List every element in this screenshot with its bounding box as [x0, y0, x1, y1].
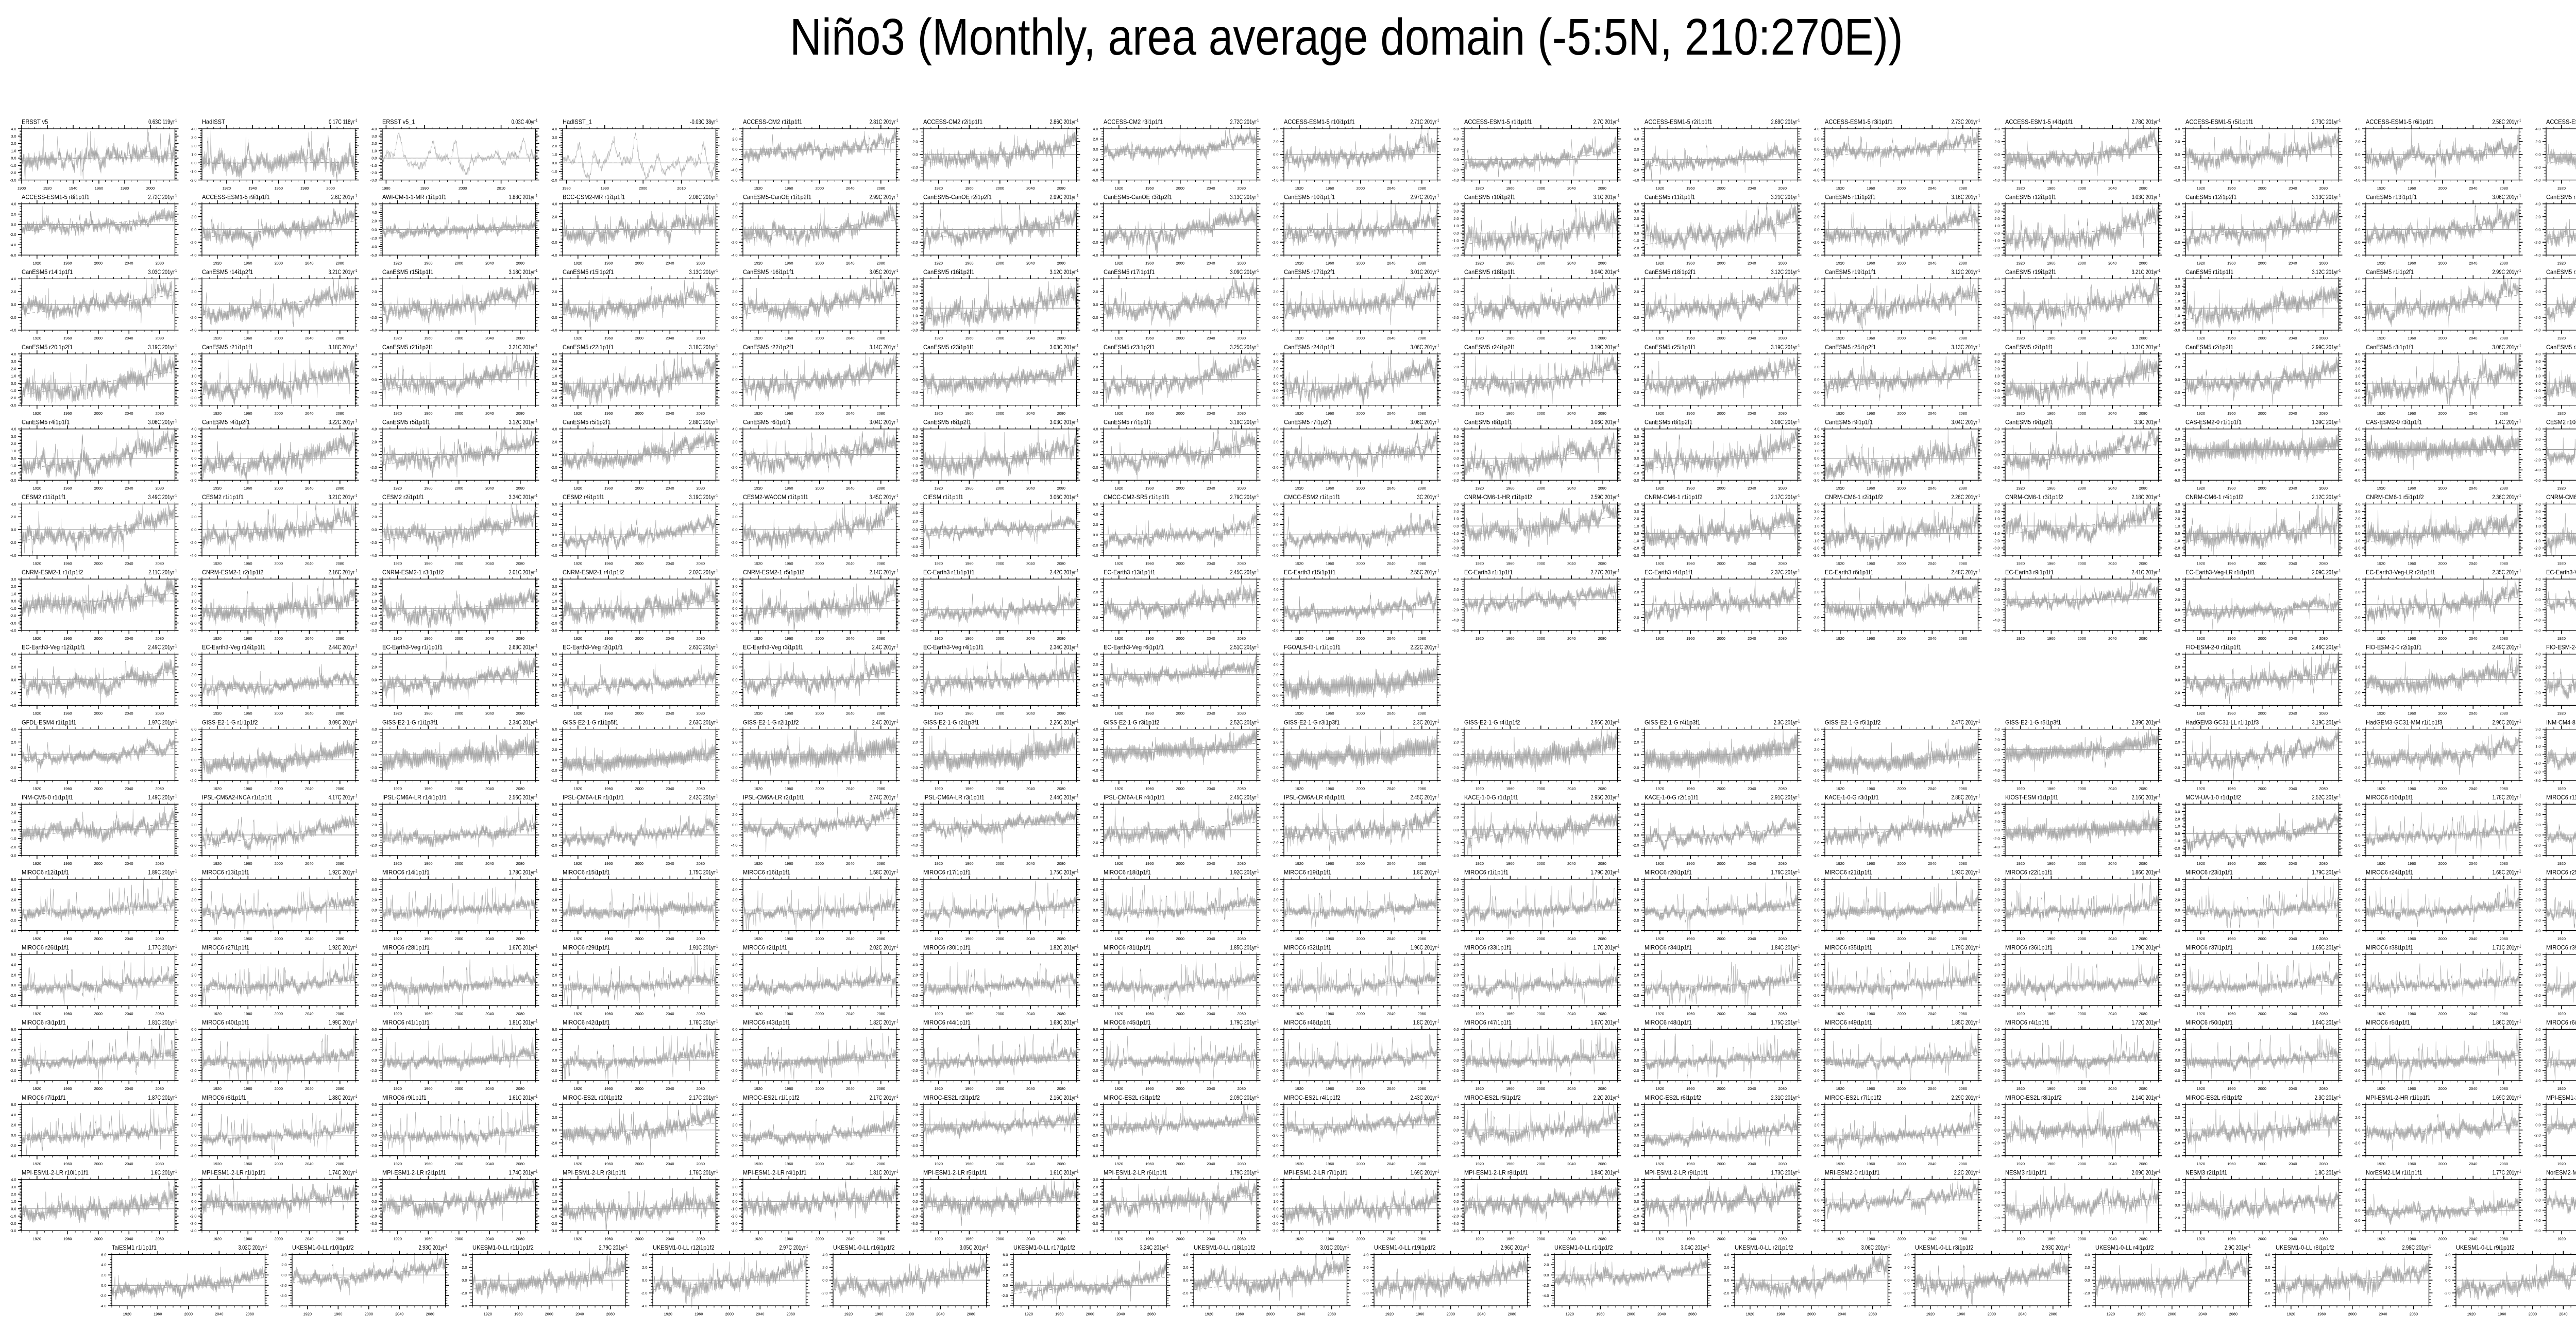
svg-text:-4.0: -4.0 — [190, 1003, 197, 1008]
svg-text:-2.0: -2.0 — [731, 240, 738, 245]
svg-text:2000: 2000 — [94, 936, 103, 941]
svg-text:2040: 2040 — [1567, 411, 1575, 416]
svg-text:1.68C 201yr-1: 1.68C 201yr-1 — [2492, 869, 2521, 876]
svg-text:2080: 2080 — [1418, 1086, 1426, 1091]
svg-text:0.0: 0.0 — [2355, 1208, 2360, 1213]
svg-text:0.0: 0.0 — [732, 227, 737, 232]
svg-text:3.01C 201yr-1: 3.01C 201yr-1 — [1320, 1244, 1349, 1252]
svg-text:-2.0: -2.0 — [370, 993, 377, 998]
svg-text:0.0: 0.0 — [2535, 381, 2540, 386]
svg-text:-4.0: -4.0 — [2534, 854, 2541, 858]
svg-text:1920: 1920 — [754, 1162, 762, 1166]
svg-text:2.0: 2.0 — [2535, 437, 2540, 442]
svg-text:2000: 2000 — [2258, 711, 2266, 716]
svg-text:CNRM-ESM2-1 r3i1p1f2: CNRM-ESM2-1 r3i1p1f2 — [382, 569, 444, 576]
svg-text:2040: 2040 — [485, 861, 494, 866]
svg-text:2080: 2080 — [877, 561, 885, 566]
svg-text:-4.0: -4.0 — [641, 1304, 648, 1308]
svg-text:2.0: 2.0 — [732, 289, 737, 294]
svg-text:-2.0: -2.0 — [2174, 846, 2180, 850]
svg-text:-2.0: -2.0 — [1633, 246, 1639, 250]
svg-text:0.0: 0.0 — [1453, 231, 1459, 235]
svg-text:2000: 2000 — [1537, 636, 1545, 641]
svg-text:4.0: 4.0 — [1814, 277, 1819, 281]
svg-text:1960: 1960 — [1145, 1162, 1154, 1166]
svg-text:0.0: 0.0 — [371, 753, 377, 757]
svg-text:EC-Earth3-Veg r2i1p1f1: EC-Earth3-Veg r2i1p1f1 — [563, 644, 623, 651]
svg-text:0.0: 0.0 — [1994, 983, 1999, 987]
svg-text:4.0: 4.0 — [912, 127, 918, 131]
svg-text:2.31C 201yr-1: 2.31C 201yr-1 — [1771, 1094, 1800, 1101]
svg-text:CanESM5 r16i1p2f1: CanESM5 r16i1p2f1 — [923, 269, 974, 276]
svg-text:-4.0: -4.0 — [2534, 1144, 2541, 1148]
svg-text:4.0: 4.0 — [732, 652, 737, 657]
svg-text:KIOST-ESM r1i1p1f1: KIOST-ESM r1i1p1f1 — [2005, 794, 2058, 801]
svg-text:MIROC6 r14i1p1f1: MIROC6 r14i1p1f1 — [382, 869, 430, 876]
svg-text:UKESM1-0-LL r2i1p1f2: UKESM1-0-LL r2i1p1f2 — [1735, 1244, 1793, 1252]
svg-text:2.95C 201yr-1: 2.95C 201yr-1 — [1590, 794, 1619, 801]
svg-text:2080: 2080 — [1238, 186, 1246, 191]
svg-text:2080: 2080 — [2500, 936, 2508, 941]
svg-text:2.0: 2.0 — [1994, 440, 1999, 445]
svg-text:0.0: 0.0 — [1994, 828, 1999, 832]
svg-text:-4.0: -4.0 — [731, 928, 738, 933]
svg-text:GISS-E2-1-G r5i1p1f2: GISS-E2-1-G r5i1p1f2 — [1825, 719, 1880, 726]
svg-text:0.0: 0.0 — [1453, 456, 1459, 461]
svg-text:1.84C 201yr-1: 1.84C 201yr-1 — [1771, 944, 1800, 951]
svg-text:-4.0: -4.0 — [370, 244, 377, 249]
svg-text:-2.0: -2.0 — [2174, 390, 2180, 395]
svg-text:1.69C 201yr-1: 1.69C 201yr-1 — [2492, 1094, 2521, 1101]
svg-text:2.17C 201yr-1: 2.17C 201yr-1 — [869, 1094, 898, 1101]
svg-text:3.1C 201yr-1: 3.1C 201yr-1 — [1594, 194, 1620, 201]
svg-text:-1.0: -1.0 — [1092, 1207, 1098, 1211]
svg-text:MIROC6 r47i1p1f1: MIROC6 r47i1p1f1 — [1464, 1019, 1512, 1027]
svg-text:2.0: 2.0 — [11, 811, 16, 815]
svg-text:0.0: 0.0 — [912, 823, 918, 827]
svg-text:2080: 2080 — [516, 561, 524, 566]
svg-text:0.0: 0.0 — [281, 1273, 286, 1277]
svg-text:1.82C 201yr-1: 1.82C 201yr-1 — [869, 1019, 898, 1026]
svg-text:1960: 1960 — [424, 936, 432, 941]
svg-text:2040: 2040 — [2469, 1162, 2477, 1166]
svg-text:0.0: 0.0 — [1634, 302, 1639, 307]
svg-text:ERSST v5: ERSST v5 — [22, 118, 48, 126]
svg-text:3.0: 3.0 — [191, 434, 196, 439]
svg-text:-4.0: -4.0 — [190, 328, 197, 333]
svg-text:2.0: 2.0 — [1634, 823, 1639, 827]
svg-text:0.0: 0.0 — [1273, 608, 1278, 612]
svg-text:0.0: 0.0 — [2355, 1128, 2360, 1133]
svg-text:0.0: 0.0 — [1093, 983, 1098, 987]
svg-text:2.0: 2.0 — [1273, 1048, 1278, 1052]
svg-text:2.0: 2.0 — [1093, 972, 1098, 977]
svg-text:2080: 2080 — [1418, 861, 1426, 866]
svg-text:6.0: 6.0 — [11, 877, 16, 882]
svg-text:2.0: 2.0 — [2355, 366, 2360, 371]
svg-text:2040: 2040 — [2559, 1311, 2567, 1316]
svg-text:1920: 1920 — [394, 561, 402, 566]
svg-text:2.34C 201yr-1: 2.34C 201yr-1 — [509, 719, 537, 726]
svg-text:1920: 1920 — [33, 1012, 41, 1016]
svg-text:-4.0: -4.0 — [1272, 1003, 1279, 1008]
svg-text:2000: 2000 — [1447, 1311, 1455, 1316]
svg-text:3.0: 3.0 — [732, 1178, 737, 1182]
svg-text:MIROC-ES2L r2i1p1f2: MIROC-ES2L r2i1p1f2 — [923, 1094, 980, 1101]
svg-text:4.0: 4.0 — [371, 352, 377, 356]
svg-text:2080: 2080 — [2139, 1012, 2147, 1016]
svg-text:1920: 1920 — [1476, 336, 1484, 340]
svg-text:-4.0: -4.0 — [190, 703, 197, 708]
svg-text:2.0: 2.0 — [2535, 140, 2540, 144]
svg-text:0.0: 0.0 — [11, 527, 16, 532]
svg-text:2000: 2000 — [2258, 411, 2266, 416]
svg-text:3.19C 201yr-1: 3.19C 201yr-1 — [1590, 344, 1619, 351]
svg-text:1.79C 201yr-1: 1.79C 201yr-1 — [1230, 1169, 1259, 1176]
svg-text:1920: 1920 — [2197, 861, 2205, 866]
svg-text:2000: 2000 — [1537, 1012, 1545, 1016]
svg-text:2040: 2040 — [666, 336, 674, 340]
svg-text:4.0: 4.0 — [552, 1037, 557, 1042]
svg-text:2.0: 2.0 — [1814, 214, 1819, 219]
svg-text:2040: 2040 — [2469, 636, 2477, 641]
svg-text:-4.0: -4.0 — [731, 403, 738, 407]
svg-text:2.0: 2.0 — [1814, 590, 1819, 594]
svg-text:-6.0: -6.0 — [2534, 1153, 2541, 1158]
svg-text:0.0: 0.0 — [2175, 677, 2180, 682]
svg-text:3.01C 201yr-1: 3.01C 201yr-1 — [1410, 268, 1439, 276]
svg-text:-4.0: -4.0 — [1813, 403, 1820, 407]
svg-text:4.0: 4.0 — [912, 587, 918, 592]
svg-text:0.0: 0.0 — [1634, 456, 1639, 461]
svg-text:-4.0: -4.0 — [2354, 1003, 2361, 1008]
svg-text:4.0: 4.0 — [191, 1037, 196, 1042]
svg-text:-4.0: -4.0 — [1633, 1228, 1639, 1233]
svg-text:1920: 1920 — [2016, 936, 2025, 941]
svg-text:INM-CM4-8 r1i1p1f1: INM-CM4-8 r1i1p1f1 — [2546, 719, 2576, 726]
svg-text:1980: 1980 — [121, 186, 129, 191]
svg-text:2.0: 2.0 — [1634, 517, 1639, 521]
svg-text:6.0: 6.0 — [1814, 727, 1819, 731]
svg-text:1960: 1960 — [63, 561, 72, 566]
svg-text:1920: 1920 — [1295, 1012, 1303, 1016]
svg-text:2000: 2000 — [1537, 261, 1545, 266]
svg-text:1920: 1920 — [1115, 1237, 1123, 1241]
svg-text:0.0: 0.0 — [912, 753, 918, 757]
svg-text:-2.0: -2.0 — [190, 843, 197, 848]
svg-text:1960: 1960 — [2047, 186, 2055, 191]
svg-text:1960: 1960 — [785, 1086, 793, 1091]
svg-text:2040: 2040 — [1387, 861, 1395, 866]
svg-text:2000: 2000 — [455, 1162, 463, 1166]
svg-text:4.0: 4.0 — [191, 577, 196, 582]
svg-text:1960: 1960 — [244, 1237, 252, 1241]
svg-text:2.73C 201yr-1: 2.73C 201yr-1 — [2312, 118, 2341, 126]
svg-text:1.58C 201yr-1: 1.58C 201yr-1 — [869, 869, 898, 876]
svg-text:1920: 1920 — [1295, 561, 1303, 566]
svg-text:2000: 2000 — [1897, 636, 1906, 641]
svg-text:2000: 2000 — [1717, 186, 1725, 191]
svg-text:2.0: 2.0 — [1634, 898, 1639, 902]
svg-text:-4.0: -4.0 — [10, 778, 16, 783]
svg-text:0.0: 0.0 — [912, 306, 918, 311]
svg-text:1960: 1960 — [2227, 1162, 2235, 1166]
svg-text:2.0: 2.0 — [11, 665, 16, 670]
svg-text:4.0: 4.0 — [191, 202, 196, 207]
svg-text:-2.0: -2.0 — [2354, 240, 2361, 245]
svg-text:-3.0: -3.0 — [10, 478, 16, 483]
svg-text:0.0: 0.0 — [732, 147, 737, 152]
svg-text:-4.0: -4.0 — [1993, 845, 2000, 849]
svg-text:-2.0: -2.0 — [2264, 1291, 2270, 1295]
svg-text:2.0: 2.0 — [2355, 823, 2360, 827]
svg-text:CESM2 r1i1p1f1: CESM2 r1i1p1f1 — [202, 494, 244, 501]
svg-text:-4.0: -4.0 — [2174, 703, 2180, 708]
svg-text:2080: 2080 — [877, 1012, 885, 1016]
svg-text:1960: 1960 — [2408, 636, 2416, 641]
svg-text:1.75C 201yr-1: 1.75C 201yr-1 — [1049, 869, 1078, 876]
svg-text:-3.0: -3.0 — [1452, 478, 1459, 483]
svg-text:-4.0: -4.0 — [10, 628, 16, 633]
svg-text:3.18C 201yr-1: 3.18C 201yr-1 — [509, 268, 537, 276]
svg-text:6.0: 6.0 — [552, 727, 557, 731]
svg-text:2080: 2080 — [1238, 561, 1246, 566]
svg-text:4.0: 4.0 — [2355, 1037, 2360, 1042]
svg-text:0.0: 0.0 — [1814, 302, 1819, 307]
svg-text:2000: 2000 — [1897, 261, 1906, 266]
svg-text:2.0: 2.0 — [732, 214, 737, 219]
svg-text:6.0: 6.0 — [2175, 577, 2180, 582]
svg-text:6.0: 6.0 — [11, 952, 16, 957]
svg-text:2000: 2000 — [2258, 186, 2266, 191]
svg-text:0.0: 0.0 — [1453, 598, 1459, 602]
svg-text:1960: 1960 — [63, 411, 72, 416]
svg-text:2040: 2040 — [1928, 936, 1936, 941]
svg-text:1960: 1960 — [244, 636, 252, 641]
svg-text:1920: 1920 — [1836, 561, 1844, 566]
svg-text:1920: 1920 — [574, 711, 582, 716]
svg-text:CanESM5 r8i1p2f1: CanESM5 r8i1p2f1 — [1645, 419, 1692, 426]
svg-text:-3.0: -3.0 — [370, 1221, 377, 1226]
svg-text:4.0: 4.0 — [1994, 352, 1999, 356]
svg-text:1920: 1920 — [213, 1162, 222, 1166]
svg-text:1920: 1920 — [213, 1012, 222, 1016]
svg-text:-1.0: -1.0 — [1813, 538, 1820, 543]
svg-text:-2.0: -2.0 — [731, 765, 738, 770]
svg-text:-4.0: -4.0 — [100, 1304, 107, 1308]
svg-text:2.0: 2.0 — [11, 289, 16, 294]
svg-text:2040: 2040 — [1387, 486, 1395, 491]
svg-text:1920: 1920 — [1295, 261, 1303, 266]
svg-text:-2.0: -2.0 — [1993, 1216, 2000, 1220]
svg-text:1960: 1960 — [1867, 486, 1875, 491]
svg-text:-2.0: -2.0 — [1813, 546, 1820, 551]
svg-text:-6.0: -6.0 — [1993, 778, 2000, 783]
svg-text:4.0: 4.0 — [11, 277, 16, 281]
svg-text:GISS-E2-1-G r3i1p3f1: GISS-E2-1-G r3i1p3f1 — [1284, 719, 1340, 726]
svg-text:2.36C 201yr-1: 2.36C 201yr-1 — [2492, 494, 2521, 501]
svg-text:2000: 2000 — [455, 861, 463, 866]
svg-text:0.0: 0.0 — [191, 456, 196, 461]
svg-text:-1.0: -1.0 — [911, 464, 918, 468]
svg-text:2040: 2040 — [1928, 1237, 1936, 1241]
svg-text:1.85C 201yr-1: 1.85C 201yr-1 — [1951, 1019, 1980, 1026]
svg-text:0.0: 0.0 — [371, 527, 377, 532]
svg-text:CNRM-CM6-1-HR r1i1p1f2: CNRM-CM6-1-HR r1i1p1f2 — [1464, 494, 1532, 501]
svg-text:2040: 2040 — [1207, 561, 1215, 566]
svg-text:1920: 1920 — [2557, 636, 2566, 641]
svg-text:2040: 2040 — [846, 861, 854, 866]
svg-text:-4.0: -4.0 — [1272, 703, 1279, 708]
svg-text:2000: 2000 — [816, 1162, 824, 1166]
svg-text:1920: 1920 — [935, 411, 943, 416]
svg-text:0.17C 118yr-1: 0.17C 118yr-1 — [329, 118, 357, 126]
svg-text:1920: 1920 — [2377, 411, 2385, 416]
svg-text:1920: 1920 — [1476, 1237, 1484, 1241]
svg-text:4.0: 4.0 — [1453, 1037, 1459, 1042]
svg-text:1960: 1960 — [1326, 1012, 1334, 1016]
svg-text:2080: 2080 — [516, 1012, 524, 1016]
svg-text:-4.0: -4.0 — [2174, 403, 2180, 407]
svg-text:1960: 1960 — [424, 261, 432, 266]
svg-text:4.0: 4.0 — [2535, 962, 2540, 967]
svg-text:4.0: 4.0 — [191, 277, 196, 281]
svg-text:3.05C 201yr-1: 3.05C 201yr-1 — [959, 1244, 988, 1252]
svg-text:2040: 2040 — [1207, 411, 1215, 416]
svg-text:EC-Earth3-Veg r4i1p1f1: EC-Earth3-Veg r4i1p1f1 — [923, 644, 984, 651]
svg-text:2040: 2040 — [2108, 261, 2116, 266]
svg-text:2080: 2080 — [1959, 936, 1967, 941]
svg-text:4.0: 4.0 — [732, 202, 737, 207]
svg-text:0.0: 0.0 — [2355, 152, 2360, 157]
svg-text:0.0: 0.0 — [2175, 378, 2180, 382]
svg-text:1960: 1960 — [63, 1237, 72, 1241]
svg-text:CanESM5 r15i1p1f1: CanESM5 r15i1p1f1 — [382, 269, 433, 276]
svg-text:-4.0: -4.0 — [1272, 178, 1279, 182]
svg-text:0.0: 0.0 — [371, 378, 377, 382]
svg-text:1960: 1960 — [1506, 1012, 1514, 1016]
svg-text:1920: 1920 — [394, 936, 402, 941]
svg-text:0.0: 0.0 — [371, 1058, 377, 1063]
svg-text:-2.0: -2.0 — [2534, 993, 2541, 998]
svg-text:MIROC6 r27i1p1f1: MIROC6 r27i1p1f1 — [202, 944, 249, 951]
svg-text:4.0: 4.0 — [912, 202, 918, 207]
svg-text:0.0: 0.0 — [2175, 1128, 2180, 1133]
svg-text:1920: 1920 — [43, 186, 52, 191]
svg-text:2.0: 2.0 — [11, 366, 16, 371]
svg-text:MPI-ESM1-2-LR r8i1p1f1: MPI-ESM1-2-LR r8i1p1f1 — [1464, 1169, 1528, 1176]
svg-text:6.0: 6.0 — [2355, 1027, 2360, 1032]
svg-text:1960: 1960 — [965, 1086, 973, 1091]
svg-text:-2.0: -2.0 — [1452, 993, 1459, 998]
svg-text:2.08C 201yr-1: 2.08C 201yr-1 — [689, 194, 718, 201]
svg-text:2080: 2080 — [1328, 1311, 1336, 1316]
svg-text:4.0: 4.0 — [191, 888, 196, 892]
svg-text:1920: 1920 — [2016, 1162, 2025, 1166]
svg-text:4.0: 4.0 — [11, 652, 16, 657]
svg-text:-4.0: -4.0 — [1272, 1144, 1279, 1148]
svg-text:2040: 2040 — [305, 411, 313, 416]
svg-text:1.81C 201yr-1: 1.81C 201yr-1 — [148, 1019, 177, 1026]
svg-text:0.0: 0.0 — [1453, 753, 1459, 757]
svg-text:4.0: 4.0 — [1453, 727, 1459, 731]
svg-text:0.0: 0.0 — [191, 1058, 196, 1063]
svg-text:0.0: 0.0 — [11, 302, 16, 307]
svg-text:2.0: 2.0 — [1453, 289, 1459, 294]
svg-text:1.0: 1.0 — [1634, 1192, 1639, 1197]
svg-text:2080: 2080 — [2500, 861, 2508, 866]
svg-text:1.0: 1.0 — [1994, 517, 1999, 521]
svg-text:4.0: 4.0 — [371, 652, 377, 657]
svg-text:-2.0: -2.0 — [1633, 390, 1639, 395]
svg-text:1920: 1920 — [213, 486, 222, 491]
svg-text:-2.0: -2.0 — [1993, 315, 2000, 320]
svg-text:1.0: 1.0 — [2535, 374, 2540, 379]
svg-text:1.0: 1.0 — [732, 599, 737, 604]
svg-text:2000: 2000 — [1537, 1237, 1545, 1241]
svg-text:-1.0: -1.0 — [1633, 538, 1639, 543]
svg-text:ACCESS-ESM1-5 r3i1p1f1: ACCESS-ESM1-5 r3i1p1f1 — [1825, 118, 1893, 126]
svg-text:2080: 2080 — [1598, 1086, 1606, 1091]
svg-text:2040: 2040 — [485, 561, 494, 566]
svg-text:1.81C 201yr-1: 1.81C 201yr-1 — [869, 1169, 898, 1176]
svg-text:2080: 2080 — [1057, 486, 1065, 491]
svg-text:MIROC6 r5i1p1f1: MIROC6 r5i1p1f1 — [2366, 1019, 2410, 1027]
svg-text:MIROC6 r32i1p1f1: MIROC6 r32i1p1f1 — [1284, 944, 1331, 951]
svg-text:4.0: 4.0 — [1453, 577, 1459, 582]
svg-text:0.0: 0.0 — [191, 908, 196, 913]
svg-text:0.0: 0.0 — [912, 677, 918, 682]
svg-text:3.13C 201yr-1: 3.13C 201yr-1 — [689, 268, 718, 276]
svg-text:2.0: 2.0 — [1453, 1115, 1459, 1120]
svg-text:-4.0: -4.0 — [1993, 928, 2000, 933]
svg-text:ACCESS-ESM1-5 r9i1p1f1: ACCESS-ESM1-5 r9i1p1f1 — [202, 194, 270, 201]
svg-text:-2.0: -2.0 — [731, 1144, 738, 1148]
svg-text:MIROC-ES2L r3i1p1f2: MIROC-ES2L r3i1p1f2 — [1104, 1094, 1160, 1101]
svg-text:-2.0: -2.0 — [2174, 765, 2180, 770]
svg-text:1960: 1960 — [1867, 861, 1875, 866]
svg-text:4.0: 4.0 — [11, 202, 16, 207]
svg-text:0.0: 0.0 — [1003, 1283, 1008, 1288]
svg-text:2.79C 201yr-1: 2.79C 201yr-1 — [1230, 494, 1259, 501]
svg-text:6.0: 6.0 — [1273, 652, 1278, 657]
svg-text:1960: 1960 — [965, 561, 973, 566]
svg-text:2000: 2000 — [2258, 1086, 2266, 1091]
svg-text:4.0: 4.0 — [2175, 127, 2180, 131]
svg-text:2.0: 2.0 — [11, 441, 16, 446]
svg-text:-4.0: -4.0 — [1633, 854, 1639, 858]
svg-text:2000: 2000 — [996, 786, 1004, 791]
svg-text:-4.0: -4.0 — [370, 703, 377, 708]
svg-text:1920: 1920 — [394, 411, 402, 416]
svg-text:4.0: 4.0 — [1453, 352, 1459, 356]
svg-text:-1.0: -1.0 — [190, 464, 197, 468]
svg-text:2.0: 2.0 — [1273, 140, 1278, 144]
svg-text:4.0: 4.0 — [1453, 277, 1459, 281]
svg-text:1920: 1920 — [1295, 1237, 1303, 1241]
svg-text:1920: 1920 — [2197, 411, 2205, 416]
svg-text:1920: 1920 — [1476, 561, 1484, 566]
svg-text:-4.0: -4.0 — [10, 1079, 16, 1083]
svg-text:-2.0: -2.0 — [10, 1221, 16, 1226]
svg-text:1920: 1920 — [1205, 1311, 1213, 1316]
svg-text:3.0: 3.0 — [2535, 359, 2540, 364]
svg-text:2000: 2000 — [275, 561, 283, 566]
svg-text:2080: 2080 — [1778, 336, 1787, 340]
svg-text:4.0: 4.0 — [2175, 1102, 2180, 1107]
svg-text:1.0: 1.0 — [732, 1192, 737, 1197]
svg-text:0.0: 0.0 — [2175, 447, 2180, 452]
